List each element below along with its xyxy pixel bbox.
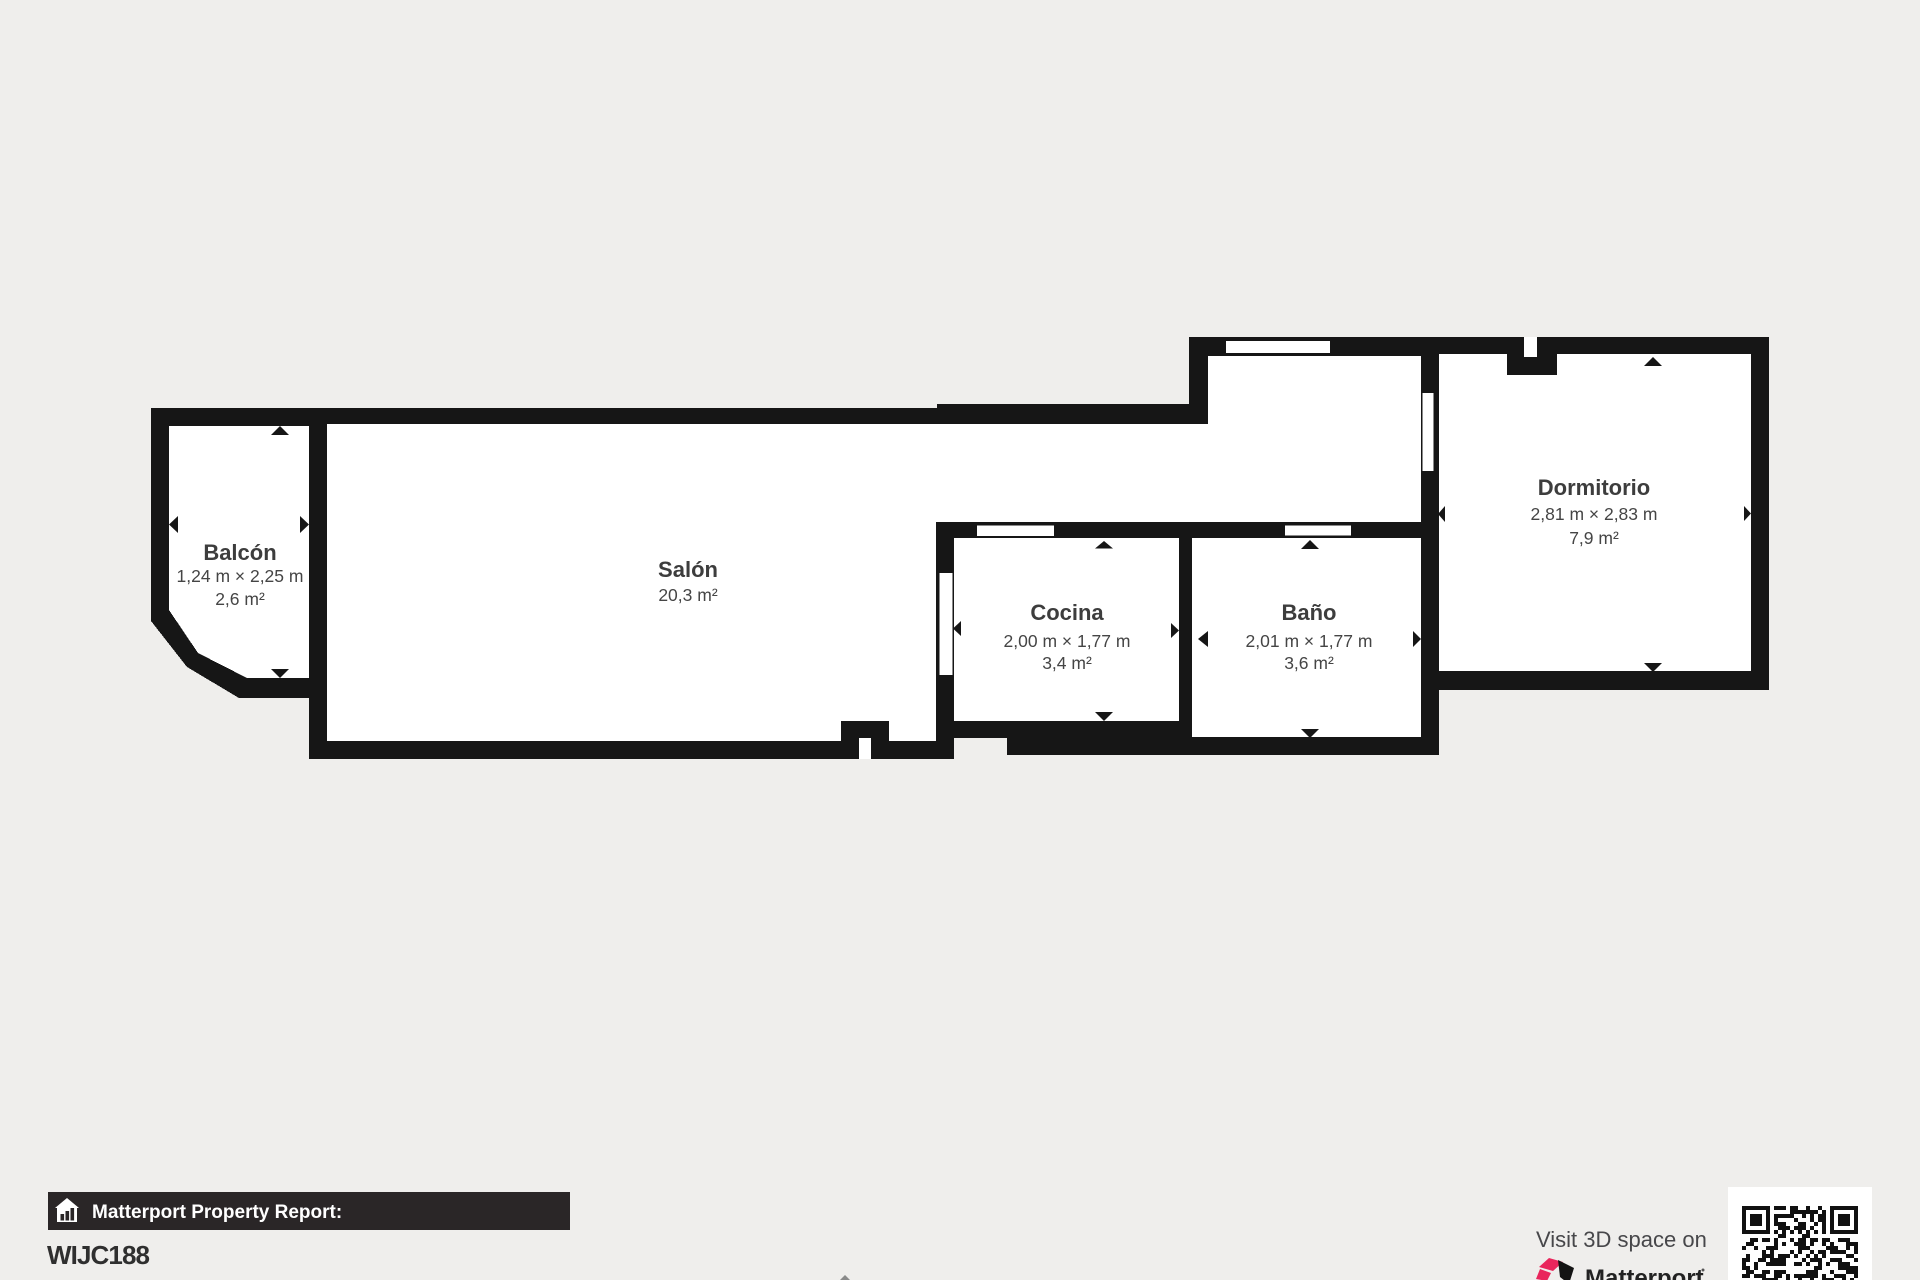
svg-text:20,3 m²: 20,3 m² <box>658 585 717 605</box>
svg-text:3,6 m²: 3,6 m² <box>1284 653 1334 673</box>
svg-text:WIJC188: WIJC188 <box>47 1240 150 1270</box>
svg-text:Balcón: Balcón <box>203 540 276 565</box>
svg-text:Cocina: Cocina <box>1030 600 1104 625</box>
svg-text:Salón: Salón <box>658 557 718 582</box>
svg-text:2,00 m × 1,77 m: 2,00 m × 1,77 m <box>1004 631 1131 651</box>
svg-text:2,81 m × 2,83 m: 2,81 m × 2,83 m <box>1531 504 1658 524</box>
svg-text:Baño: Baño <box>1282 600 1337 625</box>
svg-text:2,01 m × 1,77 m: 2,01 m × 1,77 m <box>1246 631 1373 651</box>
svg-text:Matterport: Matterport <box>1585 1265 1704 1280</box>
svg-text:7,9 m²: 7,9 m² <box>1569 528 1619 548</box>
svg-text:3,4 m²: 3,4 m² <box>1042 653 1092 673</box>
svg-text:2,6 m²: 2,6 m² <box>215 589 265 609</box>
svg-text:Dormitorio: Dormitorio <box>1538 475 1650 500</box>
svg-text:Visit 3D space on: Visit 3D space on <box>1536 1227 1707 1252</box>
svg-text:Matterport Property Report:: Matterport Property Report: <box>92 1202 342 1223</box>
svg-text:1,24 m × 2,25 m: 1,24 m × 2,25 m <box>177 566 304 586</box>
